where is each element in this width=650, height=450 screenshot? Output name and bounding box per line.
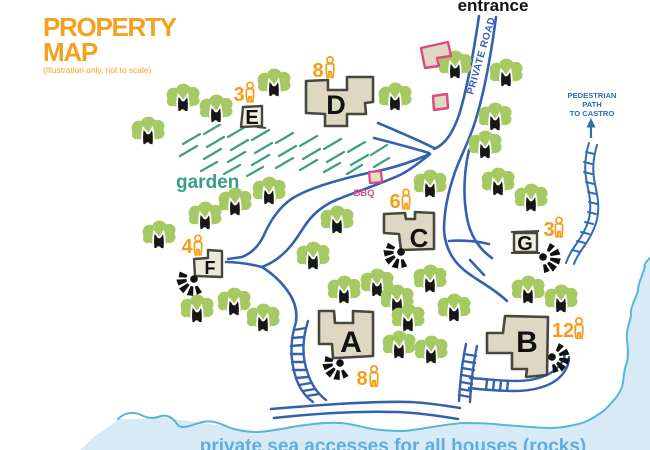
svg-text:BBQ: BBQ (353, 188, 374, 199)
svg-text:TO CASTRO: TO CASTRO (570, 109, 615, 118)
svg-text:G: G (517, 233, 533, 255)
svg-text:D: D (326, 90, 346, 120)
svg-text:3: 3 (233, 84, 244, 106)
svg-text:4: 4 (181, 236, 193, 258)
svg-text:PATH: PATH (582, 100, 602, 109)
svg-text:MAP: MAP (43, 37, 98, 67)
svg-text:E: E (245, 107, 258, 129)
svg-text:(Illustration only, not to sca: (Illustration only, not to scale) (43, 65, 152, 75)
svg-text:12: 12 (552, 320, 574, 342)
svg-text:B: B (516, 326, 538, 359)
svg-text:8: 8 (356, 368, 367, 390)
svg-text:3: 3 (543, 219, 554, 241)
svg-text:6: 6 (389, 191, 400, 213)
svg-text:C: C (410, 223, 429, 253)
svg-text:PEDESTRIAN: PEDESTRIAN (568, 91, 617, 100)
svg-text:8: 8 (312, 60, 323, 82)
svg-text:A: A (340, 326, 362, 359)
svg-text:entrance: entrance (458, 0, 529, 15)
svg-text:F: F (205, 258, 216, 278)
svg-text:private sea accesses for all h: private sea accesses for all houses (roc… (200, 436, 587, 450)
